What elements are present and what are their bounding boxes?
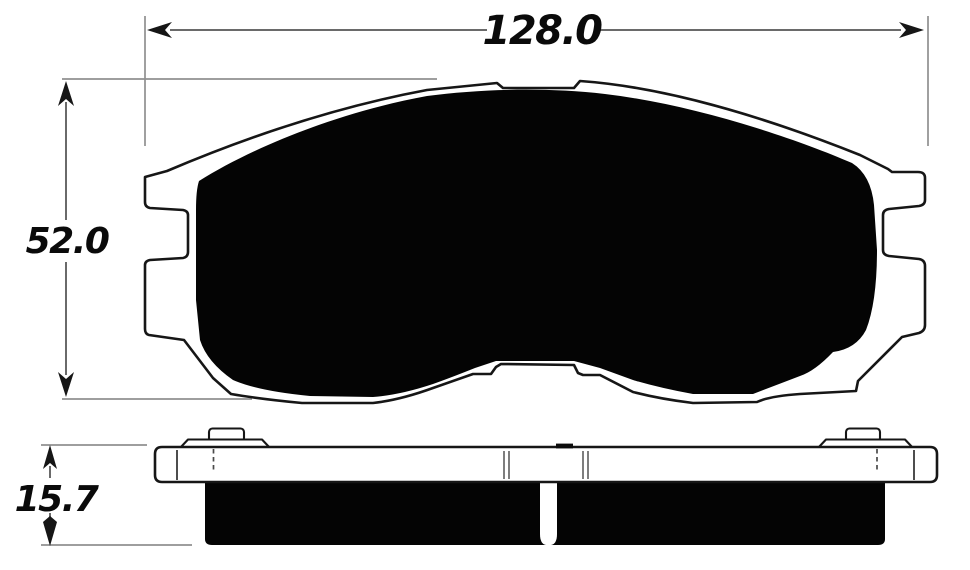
top-edge-mark <box>556 444 573 449</box>
width-dimension: 128.0 <box>147 8 924 54</box>
arrow-down-icon <box>58 372 74 397</box>
thickness-dimension: 15.7 <box>15 445 99 546</box>
width-dimension-label: 128.0 <box>482 8 602 54</box>
friction-material <box>196 90 877 397</box>
right-clip <box>818 429 913 449</box>
arrow-right-icon <box>899 22 924 38</box>
front-view <box>145 81 925 403</box>
wear-slot <box>540 482 557 545</box>
thickness-dimension-label: 15.7 <box>15 479 99 520</box>
left-clip <box>180 429 270 449</box>
brake-pad-diagram: 128.0 52.0 15.7 <box>0 0 970 570</box>
height-dimension: 52.0 <box>26 81 109 397</box>
height-dimension-label: 52.0 <box>26 221 109 262</box>
drawing-canvas: 128.0 52.0 15.7 <box>0 0 970 570</box>
side-view <box>155 429 937 546</box>
arrow-down-icon <box>43 516 57 546</box>
backing-plate-side <box>155 447 937 482</box>
arrow-left-icon <box>147 22 172 38</box>
arrow-up-icon <box>43 445 57 469</box>
